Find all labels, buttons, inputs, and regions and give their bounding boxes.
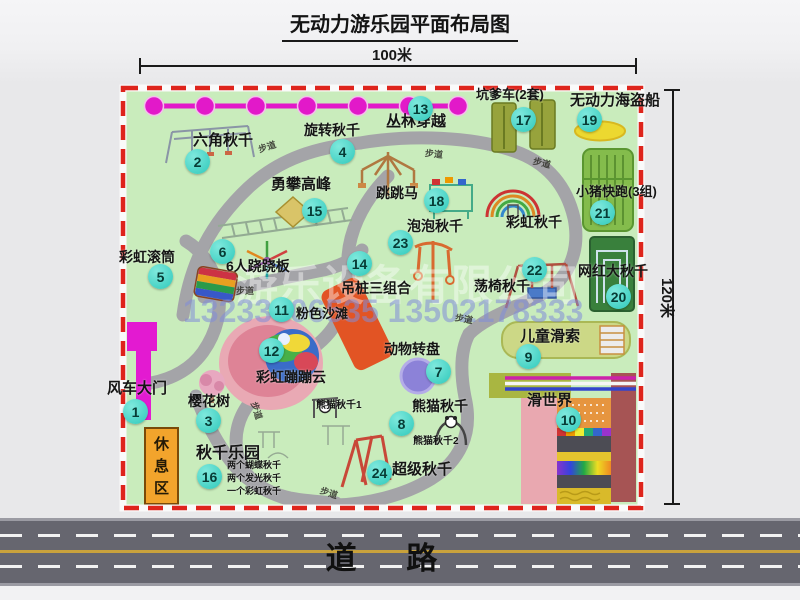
trail-label: 步道: [236, 284, 254, 297]
badge-10: 10: [556, 407, 581, 432]
label-pink-beach: 粉色沙滩: [296, 307, 348, 320]
label-six-seesaw: 6人跷跷板: [226, 259, 290, 273]
badge-23: 23: [388, 230, 413, 255]
badge-21: 21: [590, 200, 615, 225]
label-slide-world: 滑世界: [527, 393, 572, 408]
road-label: 道路: [0, 533, 800, 578]
label-rainbow-swing: 彩虹秋千: [506, 215, 562, 229]
label-pig-run: 小猪快跑(3组): [576, 185, 657, 198]
label-swing-park-note1: 两个蝴蝶秋千: [227, 461, 281, 470]
badge-22: 22: [522, 257, 547, 282]
badge-1: 1: [123, 399, 148, 424]
label-pirate-ship: 无动力海盗船: [570, 93, 660, 108]
badge-19: 19: [577, 107, 602, 132]
badge-20: 20: [606, 284, 631, 309]
label-hanging-pile: 吊桩三组合: [341, 281, 411, 295]
label-windmill-gate: 风车大门: [107, 381, 167, 396]
label-panda-swing: 熊猫秋千: [412, 399, 468, 413]
watermark-phone: 13233806535 13502178333: [183, 293, 583, 330]
label-net-swing: 网红大秋千: [578, 264, 648, 278]
label-panda-swing-1: 熊猫秋千1: [316, 401, 362, 411]
label-cherry-tree: 樱花树: [188, 394, 230, 408]
trail-label: 步道: [424, 146, 443, 161]
pink-beach-art: [219, 316, 323, 410]
label-swing-park-note2: 两个发光秋千: [227, 474, 281, 483]
badge-14: 14: [347, 251, 372, 276]
label-chair-swing: 荡椅秋千: [474, 279, 530, 293]
badge-24: 24: [367, 460, 392, 485]
screenshot-root: 游乐设备有限公司 13233806535 13502178333 无动力游乐园平…: [0, 0, 800, 600]
badge-8: 8: [389, 411, 414, 436]
badge-5: 5: [148, 264, 173, 289]
road: 道路: [0, 518, 800, 586]
label-swing-park-note3: 一个彩虹秋千: [227, 487, 281, 496]
badge-11: 11: [269, 297, 294, 322]
label-rainbow-roller: 彩虹滚筒: [119, 250, 175, 264]
badge-4: 4: [330, 139, 355, 164]
badge-9: 9: [516, 344, 541, 369]
label-kengdie-car: 坑爹车(2套): [476, 88, 544, 101]
badge-15: 15: [302, 198, 327, 223]
badge-16: 16: [197, 464, 222, 489]
badge-7: 7: [426, 359, 451, 384]
badge-3: 3: [196, 408, 221, 433]
label-jumping-horse: 跳跳马: [376, 186, 418, 200]
label-panda-swing-2: 熊猫秋千2: [413, 437, 459, 447]
label-rotating-swing: 旋转秋千: [304, 123, 360, 137]
badge-2: 2: [185, 149, 210, 174]
badge-6: 6: [210, 239, 235, 264]
label-kids-zipline: 儿童滑索: [520, 329, 580, 344]
label-bubble-swing: 泡泡秋千: [407, 219, 463, 233]
badge-13: 13: [408, 96, 433, 121]
label-hexagon-swing: 六角秋千: [193, 133, 253, 148]
badge-18: 18: [424, 188, 449, 213]
badge-12: 12: [259, 338, 284, 363]
label-rainbow-cloud: 彩虹蹦蹦云: [256, 370, 326, 384]
label-peak-climb: 勇攀高峰: [271, 177, 331, 192]
label-animal-carousel: 动物转盘: [384, 342, 440, 356]
badge-17: 17: [511, 107, 536, 132]
rest-area-label: 休息区: [150, 436, 171, 502]
label-super-swing: 超级秋千: [392, 462, 452, 477]
